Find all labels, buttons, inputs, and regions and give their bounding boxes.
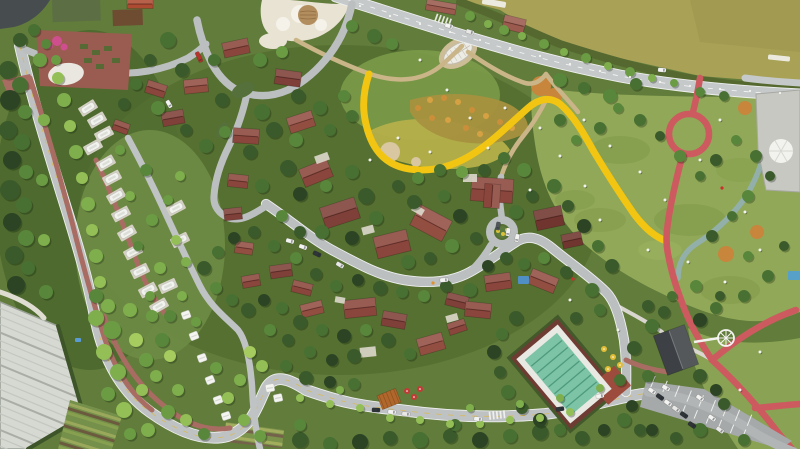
car — [372, 408, 380, 413]
tree-canopy — [617, 413, 631, 427]
tree-canopy — [446, 420, 454, 428]
tree-canopy — [244, 346, 256, 358]
street-lamp — [759, 249, 762, 252]
tree-canopy — [164, 350, 176, 362]
flower-cluster — [477, 131, 483, 137]
tree-canopy — [347, 349, 361, 363]
tree-canopy — [89, 249, 103, 263]
tree-canopy — [268, 240, 280, 252]
tree-canopy — [516, 400, 524, 408]
orange-foliage-tree — [718, 246, 734, 262]
tree-canopy — [118, 98, 130, 110]
tree-canopy — [52, 72, 64, 84]
tree-canopy — [130, 78, 142, 90]
tree-canopy — [234, 374, 246, 386]
green-roof-building — [52, 0, 101, 22]
tree-canopy — [146, 214, 158, 226]
tree-canopy — [642, 370, 654, 382]
tree-canopy — [258, 294, 270, 306]
tree-canopy — [41, 39, 51, 49]
flower-cluster — [483, 113, 489, 119]
tree-canopy — [674, 150, 686, 162]
tree-canopy — [248, 226, 260, 238]
tree-canopy — [76, 172, 88, 184]
tree-canopy — [210, 362, 222, 374]
lawn-mottle — [700, 276, 760, 304]
tree-canopy — [670, 79, 678, 87]
tree-canopy — [369, 211, 383, 225]
guardrail-post — [719, 88, 721, 90]
tree-canopy — [538, 252, 550, 264]
tree-canopy — [642, 300, 654, 312]
house-roof — [274, 69, 302, 87]
tree-canopy — [501, 385, 515, 399]
windshield — [407, 413, 409, 416]
tree-canopy — [566, 408, 574, 416]
tree-canopy — [487, 345, 501, 359]
tree-canopy — [89, 289, 103, 303]
street-lamp — [429, 151, 432, 154]
tree-canopy — [358, 188, 374, 204]
tree-canopy — [779, 241, 789, 251]
street-lamp — [647, 249, 650, 252]
tree-canopy — [253, 53, 267, 67]
flower-cluster — [497, 119, 503, 125]
planter-bed — [80, 44, 88, 49]
tree-canopy — [598, 424, 610, 436]
umbrella-center — [603, 348, 605, 350]
tree-canopy — [645, 319, 659, 333]
tree-canopy — [463, 283, 477, 297]
tree-canopy — [36, 174, 48, 186]
tree-canopy — [197, 261, 211, 275]
tree-canopy — [592, 240, 604, 252]
tree-canopy — [0, 90, 20, 110]
tree-canopy — [320, 180, 332, 192]
tree-canopy — [238, 414, 250, 426]
tree-canopy — [12, 77, 28, 93]
house-roof — [241, 274, 261, 289]
tree-canopy — [578, 82, 590, 94]
sand-patch — [411, 157, 421, 167]
tree-canopy — [625, 67, 635, 77]
tree-canopy — [484, 20, 492, 28]
tree-canopy — [133, 241, 143, 251]
tree-canopy — [416, 416, 424, 424]
guardrail-post — [389, 15, 391, 17]
house-roof — [343, 297, 377, 318]
tree-canopy — [291, 89, 305, 103]
planter-bed — [92, 50, 100, 55]
tree-canopy — [742, 190, 754, 202]
planter-bed — [112, 58, 120, 63]
tree-canopy — [539, 39, 549, 49]
tree-canopy — [69, 145, 83, 159]
tree-canopy — [289, 133, 303, 147]
house-roof — [464, 301, 491, 319]
tree-canopy — [161, 405, 175, 419]
umbrella-center — [406, 390, 408, 392]
street-lamp — [609, 145, 612, 148]
bougainvillea — [61, 44, 68, 51]
tree-canopy — [670, 432, 682, 444]
person — [431, 281, 434, 284]
tree-canopy — [103, 321, 121, 339]
tree-canopy — [603, 89, 617, 103]
car-body — [556, 406, 565, 411]
tree-canopy — [292, 432, 308, 448]
flower-bush — [501, 232, 505, 236]
house-roof — [223, 207, 242, 221]
tree-canopy — [282, 334, 294, 346]
tree-canopy — [404, 348, 416, 360]
tree-canopy — [554, 424, 566, 436]
tree-canopy — [456, 166, 468, 178]
flower-cluster — [469, 107, 475, 113]
tree-canopy — [613, 103, 623, 113]
tree-canopy — [500, 252, 512, 264]
tree-canopy — [145, 291, 155, 301]
tree-canopy — [482, 260, 494, 272]
tree-canopy — [345, 165, 359, 179]
tree-canopy — [750, 150, 762, 162]
tree-canopy — [762, 270, 774, 282]
lawn-mottle — [638, 240, 682, 260]
tree-canopy — [575, 431, 589, 445]
street-lamp — [639, 171, 642, 174]
tree-canopy — [655, 131, 665, 141]
tree-canopy — [581, 53, 591, 63]
tree-canopy — [96, 344, 112, 360]
umbrella-center — [413, 396, 415, 398]
tree-canopy — [731, 135, 741, 145]
tree-canopy — [299, 371, 313, 385]
tree-canopy — [560, 266, 572, 278]
car — [556, 406, 565, 411]
street-lamp — [529, 189, 532, 192]
tree-canopy — [180, 124, 192, 136]
tree-canopy — [536, 414, 544, 422]
tree-canopy — [743, 251, 753, 261]
blue-pool-feature — [788, 271, 800, 280]
tree-canopy — [503, 429, 517, 443]
tree-canopy — [554, 114, 566, 126]
street-lamp — [739, 389, 742, 392]
tree-canopy — [560, 48, 568, 56]
tree-canopy — [658, 306, 670, 318]
tree-canopy — [81, 197, 95, 211]
tree-canopy — [290, 252, 302, 264]
rooftop-deck — [112, 9, 143, 26]
tree-canopy — [646, 424, 658, 436]
umbrella-center — [619, 364, 621, 366]
guardrail-post — [449, 31, 451, 33]
tree-canopy — [585, 283, 599, 297]
tree-canopy — [381, 333, 395, 347]
guardrail-post — [689, 85, 691, 87]
plaza-circle — [315, 19, 327, 31]
tree-canopy — [465, 11, 475, 21]
tree-canopy — [125, 191, 135, 201]
tree-canopy — [690, 280, 702, 292]
umbrella-center — [612, 356, 614, 358]
tree-canopy — [596, 384, 604, 392]
tree-canopy — [136, 384, 148, 396]
bougainvillea — [52, 36, 62, 46]
tree-canopy — [163, 195, 173, 205]
car-body — [474, 416, 483, 421]
guardrail-post — [359, 5, 361, 7]
tree-canopy — [208, 54, 220, 66]
tree-canopy — [693, 313, 707, 327]
tree-canopy — [412, 432, 428, 448]
tree-canopy — [199, 139, 213, 153]
tree-canopy — [466, 404, 474, 412]
tree-canopy — [28, 24, 40, 36]
tree-canopy — [604, 62, 612, 70]
street-lamp — [699, 159, 702, 162]
tree-canopy — [445, 239, 459, 253]
tree-canopy — [177, 291, 187, 301]
tree-canopy — [424, 252, 436, 264]
tree-canopy — [293, 315, 307, 329]
tree-canopy — [562, 200, 574, 212]
house-roof — [183, 78, 208, 94]
planter-bed — [104, 46, 112, 51]
windshield — [393, 411, 395, 414]
tree-canopy — [695, 87, 705, 97]
tree-canopy — [577, 219, 591, 233]
tree-canopy — [124, 428, 136, 440]
street-lamp — [744, 211, 747, 214]
tree-canopy — [38, 234, 50, 246]
tree-canopy — [496, 328, 508, 340]
tree-canopy — [88, 310, 104, 326]
tree-canopy — [19, 165, 33, 179]
tree-canopy — [7, 276, 25, 294]
tree-canopy — [373, 281, 387, 295]
tree-canopy — [509, 311, 523, 325]
tree-canopy — [222, 392, 234, 404]
street-lamp — [617, 329, 620, 332]
umbrella-center — [419, 388, 421, 390]
tree-canopy — [255, 179, 269, 193]
tree-canopy — [18, 105, 32, 119]
flower-cluster — [463, 125, 469, 131]
tree-canopy — [634, 114, 646, 126]
car-body — [658, 68, 667, 73]
tree-canopy — [151, 101, 165, 115]
street-lamp — [419, 59, 422, 62]
street-lamp — [487, 147, 490, 150]
tree-canopy — [499, 25, 509, 35]
tree-canopy — [5, 246, 23, 264]
car-body — [402, 412, 411, 417]
camper-tent — [273, 393, 283, 402]
guardrail-post — [569, 63, 571, 65]
tree-canopy — [386, 38, 398, 50]
tree-canopy — [392, 180, 404, 192]
tree-canopy — [326, 354, 338, 366]
umbrella-center — [607, 368, 609, 370]
tree-canopy — [346, 110, 358, 122]
tree-canopy — [407, 195, 421, 209]
tree-canopy — [155, 333, 169, 347]
tree-canopy — [360, 324, 372, 336]
tree-canopy — [693, 369, 707, 383]
tree-canopy — [210, 282, 222, 294]
roof-slope — [127, 0, 153, 4]
tree-canopy — [315, 225, 329, 239]
tree-canopy — [594, 122, 606, 134]
tree-canopy — [326, 400, 334, 408]
tree-canopy — [64, 120, 76, 132]
tree-canopy — [330, 280, 342, 292]
red-greenway — [755, 404, 800, 408]
guardrail-post — [659, 81, 661, 83]
person — [571, 277, 574, 280]
tree-canopy — [526, 190, 538, 202]
tree-canopy — [215, 93, 229, 107]
tree-canopy — [139, 353, 153, 367]
tree-canopy — [160, 32, 176, 48]
tree-canopy — [313, 101, 327, 115]
street-lamp — [599, 219, 602, 222]
tree-canopy — [453, 209, 467, 223]
tree-canopy — [346, 20, 358, 32]
house-roof — [483, 183, 501, 208]
street-lamp — [724, 281, 727, 284]
tree-canopy — [181, 257, 191, 267]
flower-cluster — [455, 99, 461, 105]
tree-canopy — [718, 398, 730, 410]
house-roof — [127, 0, 153, 9]
street-lamp — [569, 299, 572, 302]
tree-canopy — [150, 370, 162, 382]
street-lamp — [719, 119, 722, 122]
house-roof — [269, 263, 293, 279]
tree-canopy — [506, 416, 514, 424]
tree-canopy — [605, 259, 619, 273]
street-lamp — [759, 351, 762, 354]
tree-canopy — [129, 333, 143, 347]
planter-bed — [96, 64, 104, 69]
tree-canopy — [338, 90, 350, 102]
tree-canopy — [175, 171, 185, 181]
plaza-circle — [276, 17, 290, 31]
guardrail-post — [419, 23, 421, 25]
tree-canopy — [614, 374, 626, 386]
tree-canopy — [594, 304, 606, 316]
tree-canopy — [412, 172, 424, 184]
flower-cluster — [441, 95, 447, 101]
tree-canopy — [715, 291, 725, 301]
tree-canopy — [175, 63, 189, 77]
flower-cluster — [429, 115, 435, 121]
tree-canopy — [101, 387, 115, 401]
house-roof — [227, 173, 248, 188]
tree-canopy — [243, 145, 257, 159]
tree-canopy — [324, 376, 336, 388]
aerial-photo: Aerial drone photograph of a riverside r… — [0, 0, 800, 449]
tree-canopy — [695, 171, 705, 181]
aerial-photo-canvas — [0, 0, 800, 449]
tree-canopy — [710, 154, 722, 166]
flower-cluster — [445, 117, 451, 123]
tree-canopy — [38, 114, 50, 126]
tree-canopy — [634, 424, 646, 436]
tree-canopy — [434, 164, 446, 176]
tree-canopy — [172, 384, 184, 396]
tree-canopy — [571, 135, 581, 145]
windshield — [445, 278, 447, 281]
orange-foliage-tree — [750, 225, 764, 239]
guardrail-post — [599, 70, 601, 72]
car — [402, 412, 411, 417]
tree-canopy — [86, 224, 98, 236]
guardrail-post — [749, 90, 751, 92]
tree-canopy — [648, 74, 656, 82]
tree-canopy — [553, 73, 567, 87]
tree-canopy — [367, 29, 381, 43]
tree-canopy — [710, 302, 722, 314]
tree-canopy — [316, 324, 328, 336]
tree-canopy — [276, 302, 288, 314]
street-lamp — [583, 119, 586, 122]
street-lamp — [687, 261, 690, 264]
tree-canopy — [470, 232, 482, 244]
tree-canopy — [337, 329, 351, 343]
tree-canopy — [141, 423, 155, 437]
tree-canopy — [626, 400, 638, 412]
tree-canopy — [3, 213, 21, 231]
guardrail-post — [539, 55, 541, 57]
street-lamp — [584, 185, 587, 188]
tree-canopy — [352, 274, 364, 286]
planter-bed — [84, 58, 92, 63]
person — [720, 186, 723, 189]
street-lamp — [369, 159, 372, 162]
street-lamp — [469, 117, 472, 120]
windshield — [377, 409, 379, 412]
tree-canopy — [146, 310, 158, 322]
tree-canopy — [123, 303, 137, 317]
tree-canopy — [738, 434, 750, 446]
tree-canopy — [94, 276, 106, 288]
windshield — [663, 69, 665, 72]
tree-canopy — [727, 211, 737, 221]
tree-canopy — [296, 394, 304, 402]
tree-canopy — [570, 312, 582, 324]
tree-canopy — [266, 122, 282, 138]
tree-canopy — [16, 197, 32, 213]
camper-tent — [265, 384, 275, 393]
tree-canopy — [280, 160, 296, 176]
tree-canopy — [39, 285, 53, 299]
tree-canopy — [324, 124, 336, 136]
tree-canopy — [356, 404, 364, 412]
street-lamp — [559, 155, 562, 158]
tree-canopy — [180, 414, 192, 426]
tree-canopy — [116, 402, 132, 418]
street-lamp — [539, 127, 542, 130]
flower-cluster — [427, 97, 433, 103]
car-body — [440, 278, 449, 283]
tree-canopy — [219, 126, 231, 138]
tree-canopy — [254, 104, 270, 120]
tree-canopy — [3, 151, 21, 169]
tree-canopy — [304, 346, 316, 358]
